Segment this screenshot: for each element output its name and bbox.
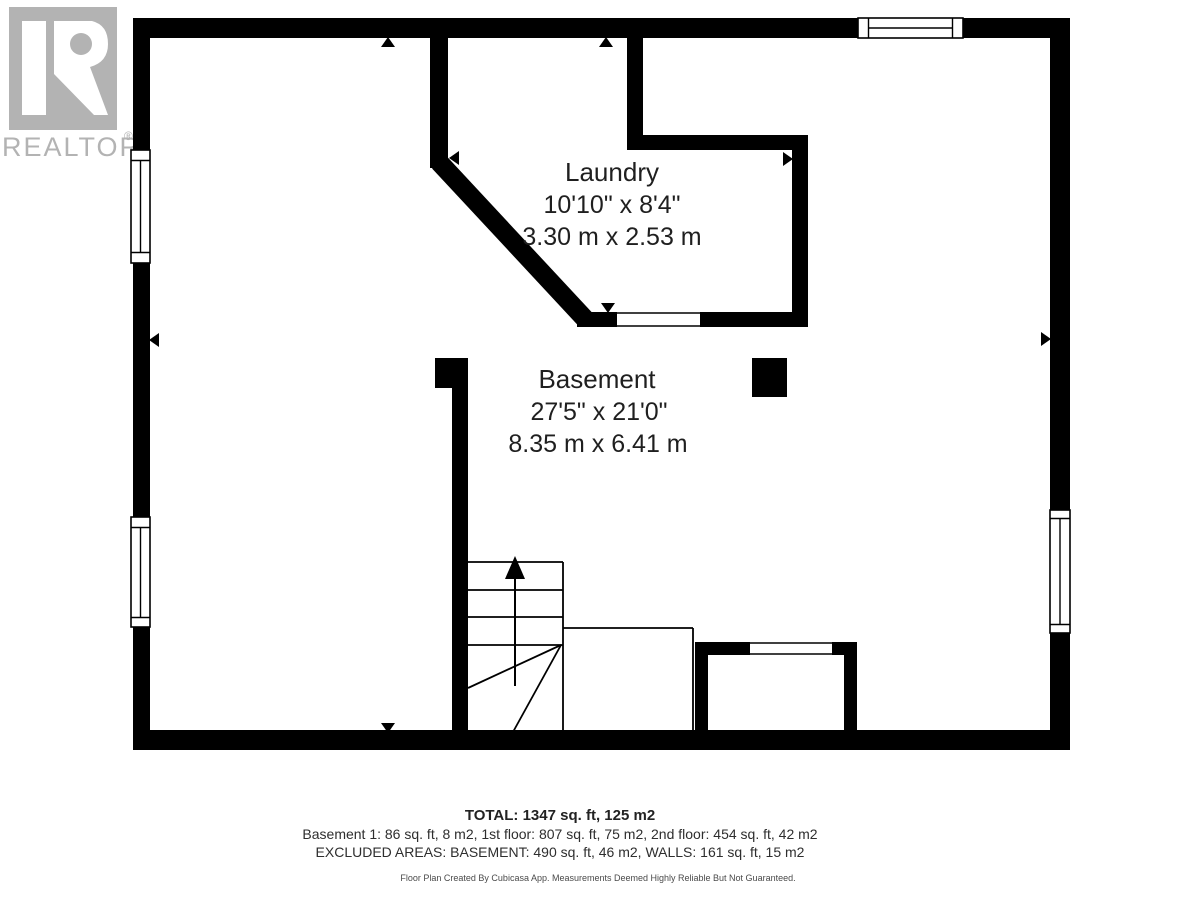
- wall-room-right: [844, 642, 857, 732]
- marker-left-wall: [149, 333, 159, 347]
- window-right: [1050, 510, 1070, 633]
- floor-plan-svg: REALTOR ®: [0, 0, 1200, 900]
- marker-laundry-right-wall: [783, 152, 793, 166]
- summary-breakdown: Basement 1: 86 sq. ft, 8 m2, 1st floor: …: [302, 826, 817, 842]
- disclaimer-text: Floor Plan Created By Cubicasa App. Meas…: [400, 873, 795, 883]
- room-label-laundry: Laundry: [565, 157, 659, 187]
- wall-laundry-bottom-right: [700, 312, 808, 327]
- window-left-lower: [131, 517, 150, 627]
- room-dim-metric-basement: 8.35 m x 6.41 m: [508, 430, 687, 458]
- wall-laundry-left: [430, 38, 448, 168]
- room-label-basement: Basement: [538, 364, 656, 394]
- realtor-logo-label: REALTOR: [2, 132, 141, 162]
- realtor-logo-r-counter: [70, 33, 92, 55]
- window-left-upper: [131, 150, 150, 263]
- wall-room-left: [695, 642, 708, 732]
- wall-bottom: [133, 730, 1070, 750]
- marker-right-wall: [1041, 332, 1051, 346]
- room-dim-imperial-basement: 27'5" x 21'0": [530, 398, 667, 426]
- marker-top-wall-left: [381, 37, 395, 47]
- room-dim-metric-laundry: 3.30 m x 2.53 m: [522, 223, 701, 251]
- wall-stairs-left: [452, 358, 468, 732]
- stair-winder: [513, 645, 561, 732]
- stairs: [468, 556, 693, 732]
- registered-mark: ®: [124, 129, 133, 143]
- wall-notch-horizontal: [627, 135, 808, 150]
- wall-left: [133, 18, 150, 750]
- wall-right: [1050, 38, 1070, 750]
- wall-notch-vertical: [627, 38, 643, 150]
- wall-room-top-left: [695, 642, 750, 655]
- marker-laundry-window: [601, 303, 615, 313]
- window-top: [858, 18, 963, 38]
- summary-text: TOTAL: 1347 sq. ft, 125 m2 Basement 1: 8…: [302, 807, 817, 883]
- wall-laundry-right: [792, 135, 808, 327]
- marker-top-wall-laundry: [599, 37, 613, 47]
- pillar-left: [435, 358, 465, 388]
- room-dim-imperial-laundry: 10'10" x 8'4": [543, 191, 680, 219]
- realtor-logo-bar: [22, 21, 46, 115]
- realtor-logo: REALTOR ®: [2, 7, 141, 162]
- pillar-right: [752, 358, 787, 397]
- summary-total: TOTAL: 1347 sq. ft, 125 m2: [465, 807, 655, 824]
- stairs-up-arrow-head: [505, 556, 525, 579]
- wall-laundry-bottom-left: [577, 312, 617, 327]
- summary-excluded: EXCLUDED AREAS: BASEMENT: 490 sq. ft, 46…: [316, 844, 805, 860]
